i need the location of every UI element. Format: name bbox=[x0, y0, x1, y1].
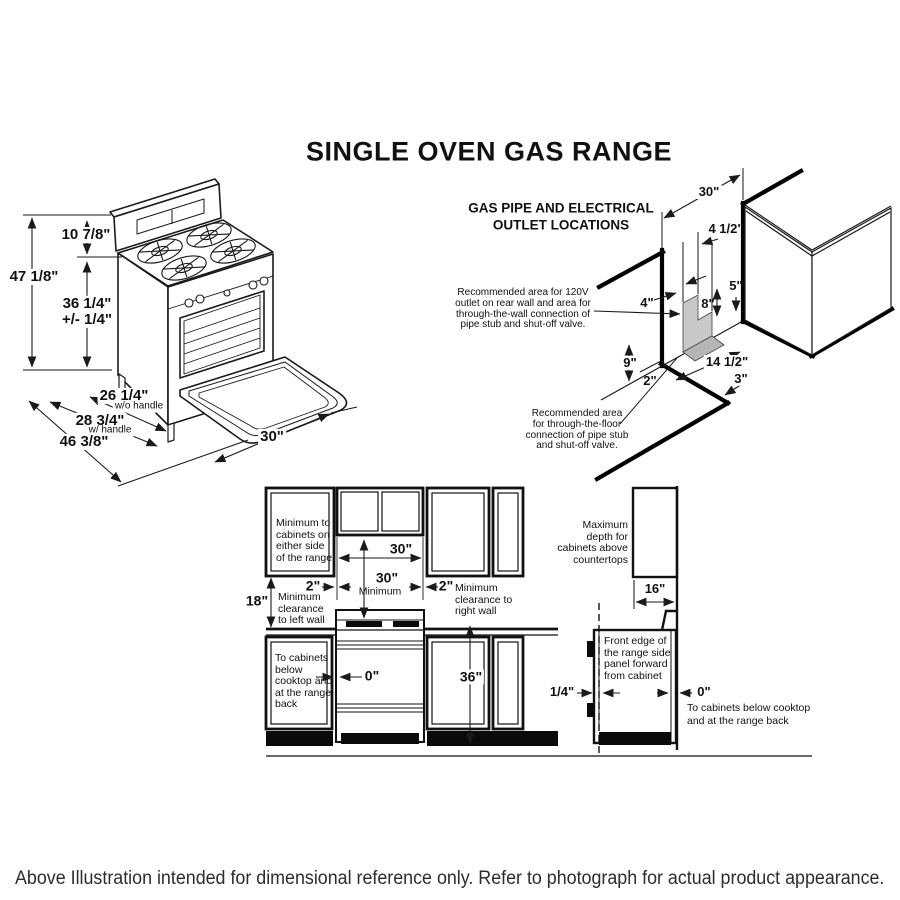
dim-backsplash-height-label: 10 7/8" bbox=[60, 227, 113, 243]
gas-dim-floor-width: 14 1/2" bbox=[704, 355, 750, 369]
dim-depth-no-handle-note: w/o handle bbox=[113, 402, 165, 413]
clr-dim-cabinet-depth: 16" bbox=[645, 582, 666, 596]
clr-dim-left-wall: 18" bbox=[246, 593, 268, 608]
gas-dim-rear-wall-width: 30" bbox=[697, 185, 722, 199]
gas-dim-outlet-height: 8" bbox=[701, 297, 714, 311]
clr-note-below-side: To cabinets below cooktop and at the ran… bbox=[687, 702, 810, 727]
gas-dim-outlet-top: 5" bbox=[729, 279, 742, 293]
clr-dim-zero-side: 0" bbox=[697, 685, 710, 699]
clr-dim-zero-front: 0" bbox=[365, 668, 379, 683]
clr-note-front-edge: Front edge of the range side panel forwa… bbox=[604, 636, 671, 682]
disclaimer-caption: Above Illustration intended for dimensio… bbox=[15, 868, 884, 890]
gas-note-floor-connection: Recommended area for through-the-floor c… bbox=[517, 409, 637, 452]
installation-spec-sheet: SINGLE OVEN GAS RANGE 47 1/8" 10 7/8" 36… bbox=[0, 0, 900, 900]
clr-dim-side-right: 2" bbox=[439, 578, 453, 593]
clr-dim-min-vertical: 30" bbox=[376, 570, 398, 585]
gas-dim-outlet-right: 4 1/2" bbox=[708, 222, 743, 236]
gas-dim-floor-depth: 3" bbox=[734, 372, 747, 386]
clr-note-left-wall: Minimum clearance to left wall bbox=[278, 592, 325, 627]
clr-dim-counter-height: 36" bbox=[458, 669, 484, 684]
dim-depth-door-open-label: 46 3/8" bbox=[58, 434, 111, 450]
gas-dim-outlet-left: 4" bbox=[640, 296, 653, 310]
dim-overall-height-label: 47 1/8" bbox=[8, 269, 61, 285]
gas-dim-floor-left: 9" bbox=[621, 356, 638, 370]
page-title: SINGLE OVEN GAS RANGE bbox=[306, 137, 672, 166]
gas-dim-floor-gap: 2" bbox=[643, 374, 656, 388]
clr-dim-min-vertical-note: Minimum bbox=[359, 586, 402, 598]
dim-range-width-label: 30" bbox=[258, 429, 286, 445]
range-front-view bbox=[336, 610, 424, 742]
clr-note-side-cabinets: Minimum to cabinets on either side of th… bbox=[276, 518, 335, 564]
gas-section-heading: GAS PIPE AND ELECTRICAL OUTLET LOCATIONS bbox=[468, 201, 654, 234]
clr-note-right-wall: Minimum clearance to right wall bbox=[455, 583, 512, 618]
gas-note-wall-outlet: Recommended area for 120V outlet on rear… bbox=[450, 288, 596, 331]
clr-dim-quarter-inch: 1/4" bbox=[550, 685, 574, 699]
clr-note-max-depth: Maximum depth for cabinets above counter… bbox=[546, 520, 628, 566]
clr-dim-cabinet-width: 30" bbox=[390, 541, 412, 556]
line-art bbox=[0, 0, 900, 900]
dim-cooktop-height-label: 36 1/4" +/- 1/4" bbox=[60, 296, 114, 328]
clr-note-below-cabinets: To cabinets below cooktop and at the ran… bbox=[275, 653, 332, 711]
